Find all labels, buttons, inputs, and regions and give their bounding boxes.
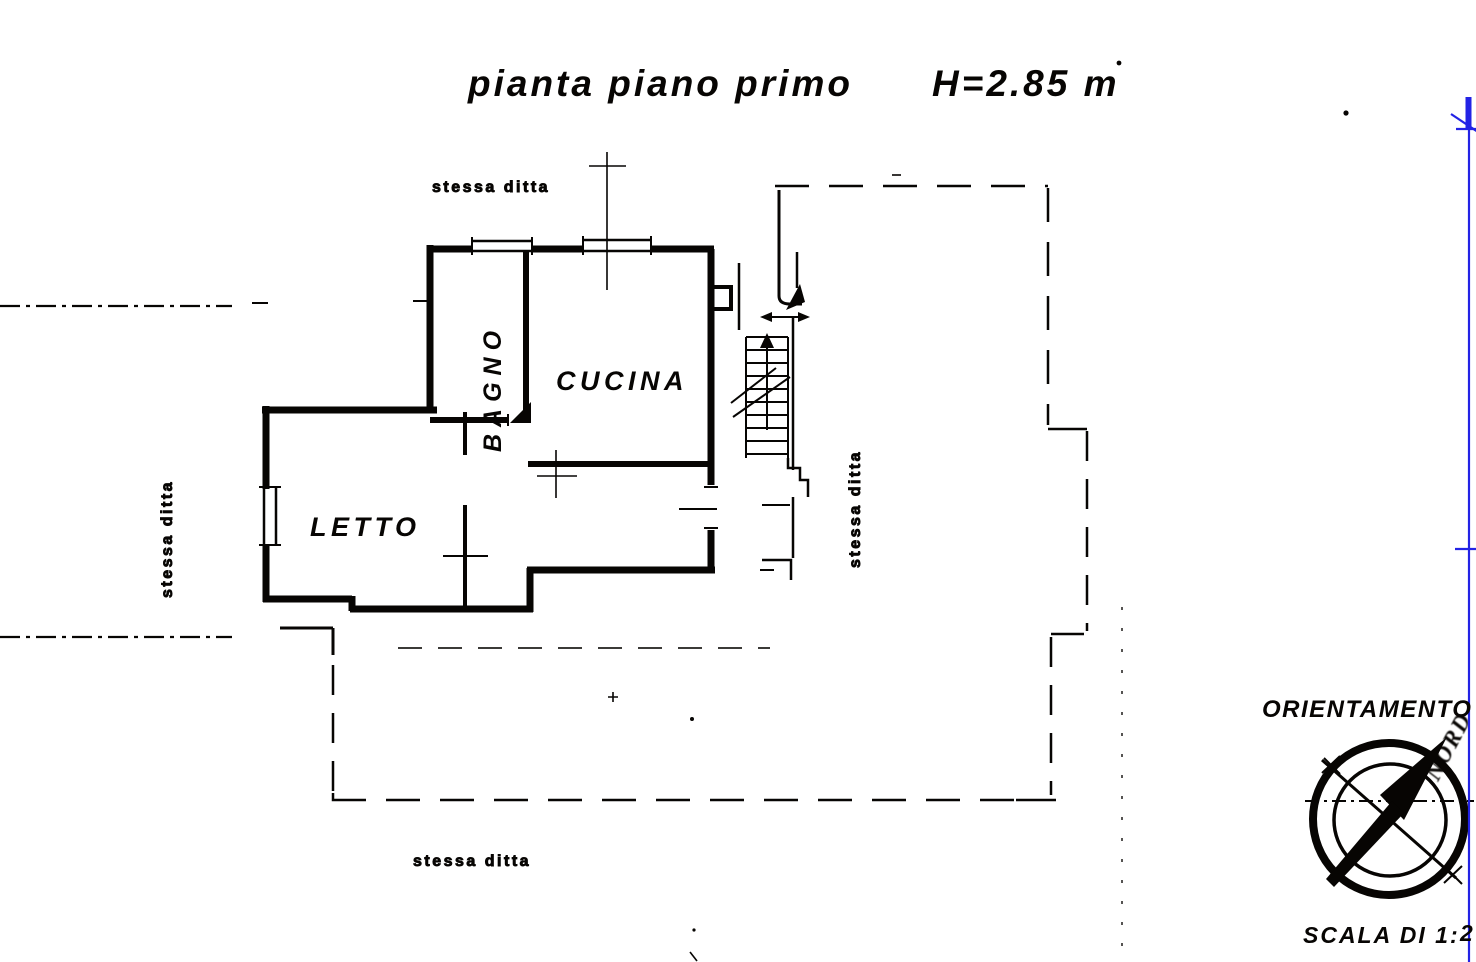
floor-plan-scan: NORD pianta piano primo H=2.85 m stessa … [0,0,1476,962]
scale-value: 2 [1459,920,1475,946]
lot-line-lower [0,637,770,648]
lot-line-upper [0,301,433,306]
adjacency-label-right: stessa ditta [847,450,864,568]
room-label-bagno: BAGNO [479,324,507,452]
door-symbols [508,284,805,426]
compass-rose: NORD [1305,708,1476,895]
plan-labels: pianta piano primo H=2.85 m stessa ditta… [159,61,1475,948]
height-note: H=2.85 m [932,63,1120,104]
adjacency-label-bottom: stessa ditta [413,853,531,870]
scale-label: SCALA DI 1: [1303,922,1460,948]
scan-specks [690,110,1349,961]
staircase [731,190,810,580]
page-title: pianta piano primo [467,63,853,104]
terrace-dashed-outline [280,186,1122,962]
room-label-letto: LETTO [310,512,421,542]
compass-title: ORIENTAMENTO [1262,696,1472,723]
adjacency-label-top: stessa ditta [432,179,550,196]
adjacency-label-left: stessa ditta [159,480,176,598]
floor-plan-drawing: NORD pianta piano primo H=2.85 m stessa … [0,0,1476,962]
title-scan-dot [1117,61,1122,66]
room-label-cucina: CUCINA [556,366,688,396]
entry-door-leaf [786,284,805,310]
